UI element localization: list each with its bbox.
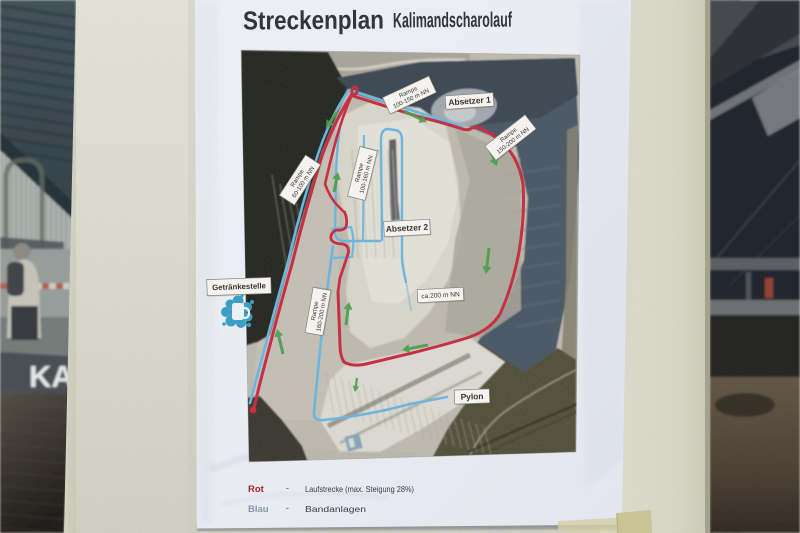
svg-text:-: - [286,503,289,513]
svg-text:Laufstrecke (max. Steigung 28%: Laufstrecke (max. Steigung 28%) [305,484,414,494]
svg-text:KA: KA [29,359,74,394]
svg-text:Kalimandscharolauf: Kalimandscharolauf [393,9,513,33]
svg-text:-: - [286,483,289,493]
svg-text:Blau: Blau [248,504,269,515]
svg-text:Streckenplan: Streckenplan [243,5,384,36]
svg-text:Pylon: Pylon [460,391,483,402]
svg-text:Rot: Rot [248,484,265,495]
svg-text:Getränkestelle: Getränkestelle [212,281,267,292]
svg-text:Bandanlagen: Bandanlagen [305,504,366,514]
